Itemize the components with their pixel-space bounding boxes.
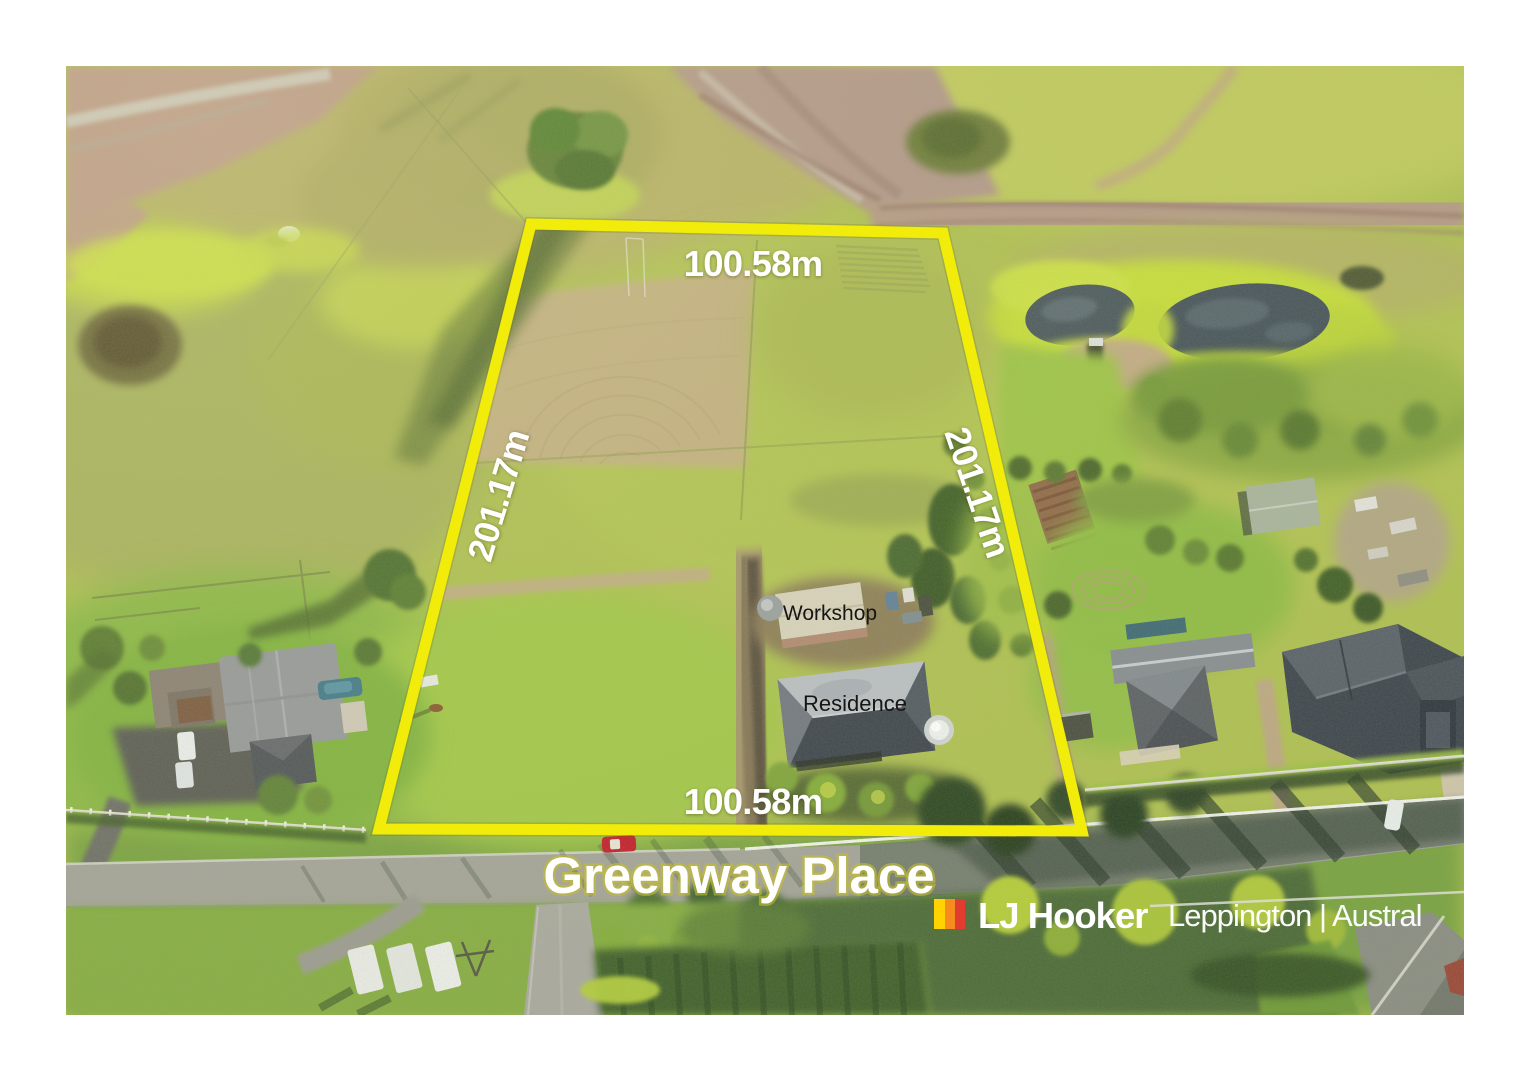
svg-text:Residence: Residence [803, 691, 907, 716]
svg-text:Greenway Place: Greenway Place [543, 847, 934, 904]
svg-text:LJ Hooker: LJ Hooker [978, 895, 1148, 936]
svg-text:100.58m: 100.58m [684, 781, 823, 822]
svg-text:Leppington | Austral: Leppington | Austral [1168, 898, 1421, 933]
svg-text:Workshop: Workshop [783, 602, 877, 625]
svg-text:100.58m: 100.58m [684, 243, 823, 284]
